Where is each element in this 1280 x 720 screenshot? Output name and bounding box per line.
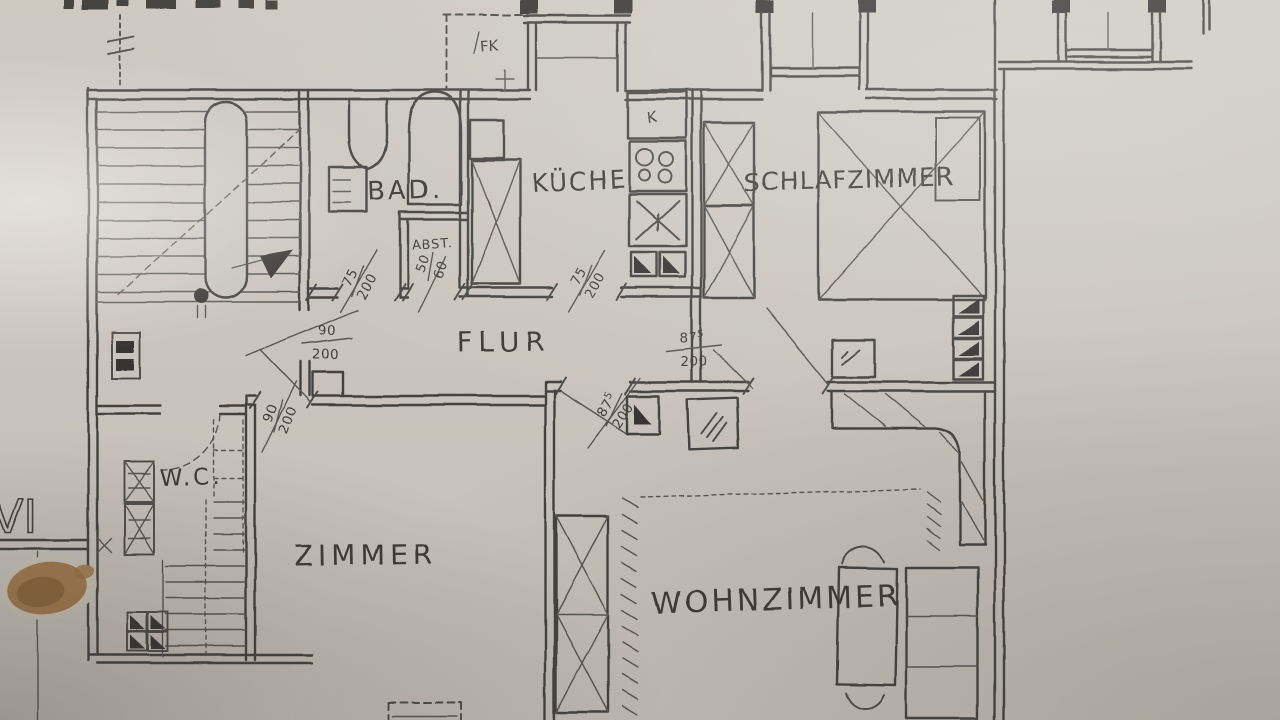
coffee-stain — [0, 549, 101, 626]
bedroom-window — [756, 0, 876, 90]
radiator-zimmer — [127, 612, 168, 651]
bed — [818, 112, 985, 300]
stove — [630, 141, 686, 191]
zimmer-label: ZIMMER — [294, 538, 437, 573]
stairs-down — [163, 500, 246, 657]
ink-layer: FK BAD. — [0, 0, 1209, 720]
dimension-door-wohnzimmer: 875 200 — [590, 386, 640, 436]
zimmer-dashed-feature — [388, 702, 462, 720]
wardrobe — [704, 122, 754, 298]
wall-box-b — [687, 398, 739, 450]
dining-table — [837, 546, 897, 708]
dimension-door-flur-landing: 90 200 — [302, 323, 352, 363]
chair-bottom — [846, 692, 884, 708]
radiator-schlafzimmer — [953, 296, 983, 379]
fridge-label: K — [645, 107, 658, 126]
dim-den: 200 — [680, 354, 707, 370]
kueche-label: KÜCHE — [531, 164, 628, 198]
fk-label: FK — [479, 36, 500, 56]
kitchen-window — [520, 0, 632, 90]
chair-top — [842, 546, 884, 564]
flur-label: FLUR — [458, 326, 550, 359]
cut-off-marks — [64, 0, 278, 86]
dim-den: 60 — [431, 258, 452, 280]
kitchen-cabinet-small — [470, 120, 504, 158]
toilet — [349, 99, 387, 169]
room-wc: W.C. — [97, 396, 255, 660]
sofa — [906, 568, 978, 718]
kitchen-cabinet-tall — [472, 160, 520, 284]
room-schlafzimmer: SCHLAFZIMMER — [704, 112, 985, 379]
floor-plan-drawing: FK BAD. — [0, 0, 1280, 720]
sheet-numeral: VI — [0, 489, 37, 543]
dim-num: 90 — [318, 323, 336, 339]
room-wohnzimmer: WOHNZIMMER — [556, 391, 985, 718]
cabinet-tall — [556, 516, 608, 712]
corner-wardrobe — [832, 391, 985, 545]
abst-label: ABST. — [412, 236, 454, 254]
bad-label: BAD. — [367, 174, 444, 207]
flur-walls: FLUR — [246, 250, 995, 720]
wc-door-arc — [162, 414, 220, 470]
wohnzimmer-label: WOHNZIMMER — [651, 578, 901, 622]
schlafzimmer-label: SCHLAFZIMMER — [743, 162, 955, 198]
kitchen-counter-end — [632, 252, 685, 277]
sink — [630, 194, 686, 246]
washbasin — [329, 167, 367, 212]
dimension-door-abst: 50 60 — [411, 248, 453, 285]
wc-fixtures — [124, 462, 154, 554]
scanned-floor-plan-photo: FK BAD. — [0, 0, 1280, 720]
neighbor-window — [1052, 0, 1166, 62]
room-abst: ABST. — [400, 212, 468, 297]
fk-roof-window-zone: FK — [443, 15, 528, 90]
dim-den: 200 — [311, 347, 338, 363]
stair-start-dot — [194, 289, 209, 304]
room-zimmer: ZIMMER — [127, 538, 462, 720]
stairwell — [97, 90, 309, 396]
chimney — [112, 332, 140, 378]
nightstand — [833, 340, 875, 377]
wc-label: W.C. — [159, 464, 223, 492]
room-bad: BAD. — [329, 90, 468, 219]
